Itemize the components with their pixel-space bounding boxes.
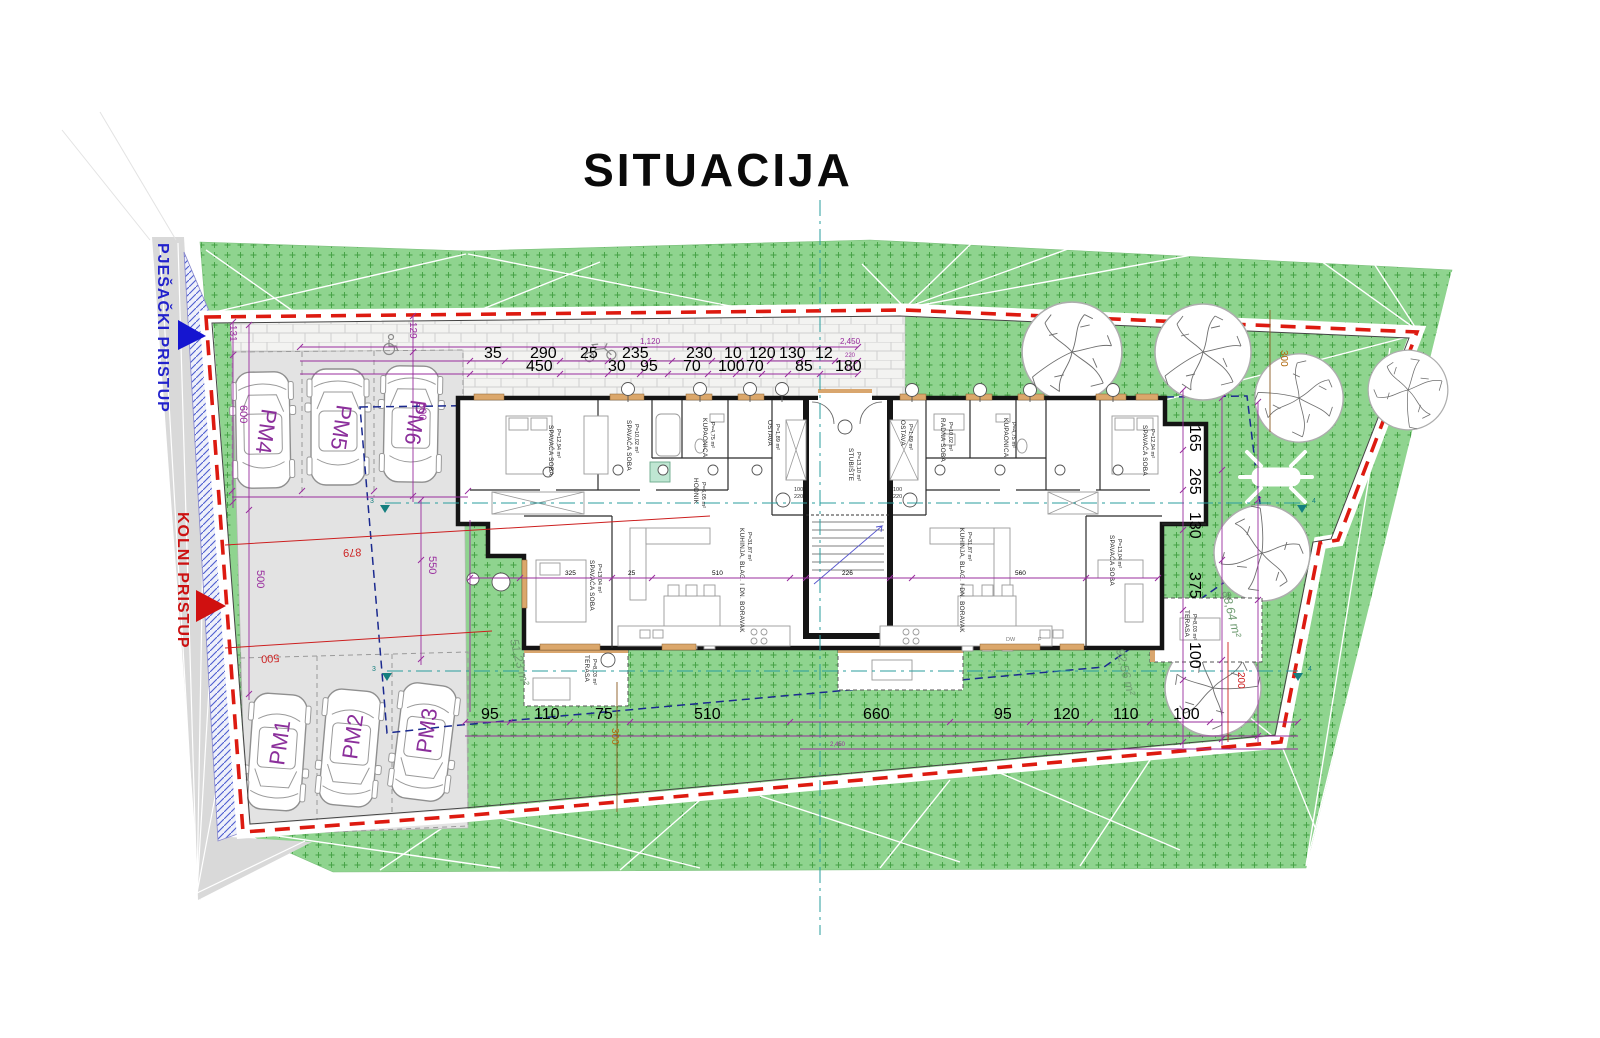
dim: 70 (683, 358, 701, 375)
dim-drive-length-s: 500 (261, 651, 280, 664)
room-label: HODNIK (692, 478, 699, 505)
dim: 110 (534, 706, 560, 723)
dim: 165 (1186, 425, 1203, 452)
dim: 450 (526, 358, 553, 375)
dim: 95 (481, 706, 499, 723)
dim: 660 (863, 706, 890, 723)
room-area: P=10,02 m² (947, 422, 953, 451)
room-area: P=13,10 m² (855, 452, 861, 481)
room-label: KUHINJA, BLAG. I DN. BORAVAK (958, 528, 965, 633)
dim: 130 (1186, 512, 1203, 539)
door-size-h-left: 220 (794, 494, 803, 500)
site-plan-page: PM4 PM5 PM6 PM1 PM2 PM3 (0, 0, 1600, 1038)
room-area: P=13,04 m² (596, 564, 602, 593)
room-area: P=12,94 m² (1149, 429, 1155, 458)
room-label: TERASA (583, 655, 590, 682)
dim: 100 (1186, 642, 1203, 669)
door-size-w-right: 100 (893, 487, 902, 493)
dim-stall-depth-w: 600 (237, 405, 249, 423)
room-area: P=1,89 m² (774, 424, 780, 450)
dim-stack-0: 2,450 (840, 337, 861, 346)
room-area: P=10,02 m² (633, 424, 639, 453)
dim: 100 (718, 358, 745, 375)
room-label: SPAVAĆA SOBA (588, 560, 597, 611)
room-area: P=4,75 m² (1010, 422, 1016, 448)
vehicle-access-label: KOLNI PRISTUP (174, 512, 191, 649)
parking-area: PM4 PM5 PM6 PM1 PM2 PM3 (229, 350, 468, 836)
room-label: SPAVAĆA SOBA (547, 425, 556, 476)
page-title: SITUACIJA (583, 144, 853, 196)
dim: 95 (994, 706, 1012, 723)
dim-walkway: 129 (407, 322, 418, 339)
room-area: P=13,04 m² (1116, 539, 1122, 568)
room-label: STUBIŠTE (847, 448, 856, 481)
dim: 265 (1186, 468, 1203, 495)
dim: 226 (842, 570, 853, 577)
room-area: P=4,75 m² (709, 422, 715, 448)
dim: 510 (694, 706, 721, 723)
dim: 35 (484, 345, 502, 362)
dim-setback-se: 200 (1235, 672, 1246, 689)
dim-left-edge: 131 (227, 325, 238, 342)
dim: 375 (1186, 572, 1203, 599)
dim-setback-s: 300 (609, 728, 620, 745)
room-area: P=1,89 m² (907, 424, 913, 450)
dim: 120 (1053, 706, 1080, 723)
site-plan-drawing: PM4 PM5 PM6 PM1 PM2 PM3 (0, 0, 1600, 1038)
room-label: KUHINJA, BLAG. I DN. BORAVAK (738, 528, 745, 633)
dim: 325 (565, 570, 576, 577)
room-area: P=31,87 m² (966, 532, 972, 561)
axis-mark-west-1: 3 (370, 498, 374, 505)
dim-setback-ne: 300 (1278, 350, 1289, 367)
dim: 95 (640, 358, 658, 375)
dim: 75 (595, 706, 613, 723)
dim-drive-width-w: 500 (254, 570, 266, 588)
room-label: TERASA (1183, 610, 1190, 637)
dim: 180 (835, 358, 862, 375)
room-label: OSTAVA (899, 420, 906, 446)
room-label: SPAVAĆA SOBA (625, 420, 634, 471)
room-area: P=12,94 m² (555, 429, 561, 458)
dim: 30 (608, 358, 626, 375)
room-area: P=6,05 m² (700, 482, 706, 508)
dim: 12 (815, 345, 833, 362)
dim: 100 (1173, 706, 1200, 723)
dim: 25 (580, 345, 598, 362)
axis-mark-east-2: 4 (1308, 666, 1312, 673)
room-label: KUPAONICA (1002, 418, 1009, 458)
axis-mark-east-1: 4 (1312, 498, 1316, 505)
dim: 510 (712, 570, 723, 577)
door-size-w-left: 100 (794, 487, 803, 493)
room-label: SPAVAĆA SOBA (1141, 425, 1150, 476)
kitchen-dw-label: DW (1006, 637, 1016, 643)
pedestrian-access-label: PJEŠAČKI PRISTUP (154, 243, 173, 413)
room-area: P=8,03 m² (1191, 614, 1197, 640)
dim: 25 (628, 570, 636, 577)
room-label: KUPAONICA (701, 418, 708, 458)
dim-plot-width-bottom: 2,450 (830, 742, 846, 748)
dim-drive-length: 879 (343, 546, 362, 559)
room-area: P=31,87 m² (746, 532, 752, 561)
dim: 110 (1113, 706, 1139, 723)
room-label: RADNA SOBA (939, 418, 946, 462)
door-size-h-right: 220 (893, 494, 902, 500)
dim: 70 (746, 358, 764, 375)
dim: 560 (1015, 570, 1026, 577)
dim: 85 (795, 358, 813, 375)
room-label: OSTAVA (766, 420, 773, 446)
room-label: SPAVAĆA SOBA (1108, 535, 1117, 586)
tree-2 (1155, 304, 1251, 400)
dim-drive-width: 550 (426, 556, 438, 574)
room-area: P=8,03 m² (591, 659, 597, 685)
dim-stall-depth-e: 600 (416, 402, 428, 420)
axis-mark-west-2: 3 (372, 666, 376, 673)
